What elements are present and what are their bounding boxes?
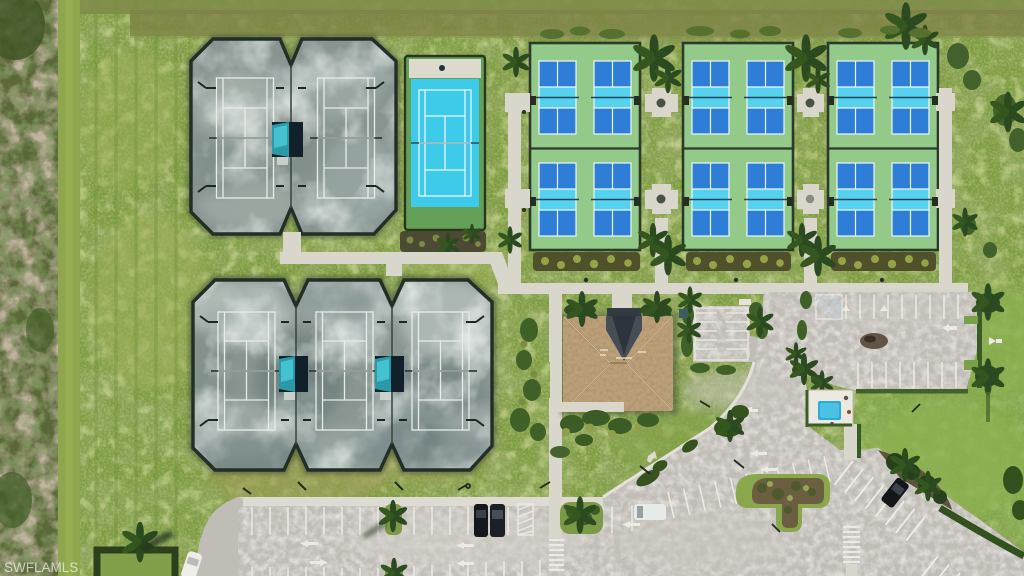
svg-text:SWFLAMLS: SWFLAMLS <box>4 560 78 575</box>
